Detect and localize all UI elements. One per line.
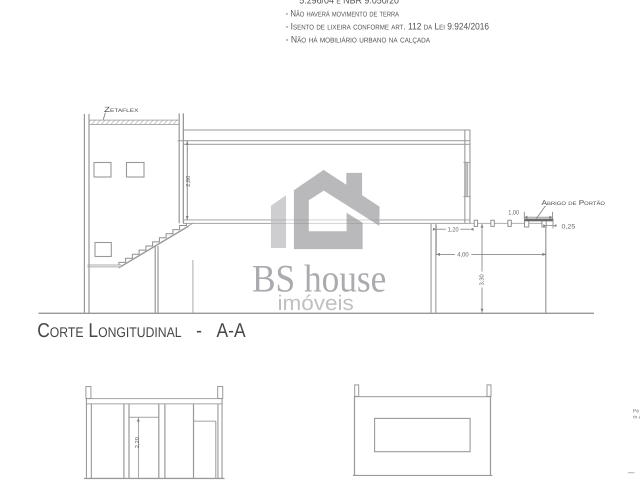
svg-text:Zetaflex: Zetaflex	[104, 105, 139, 114]
svg-text:3,30: 3,30	[479, 274, 486, 285]
svg-text:1,00: 1,00	[508, 209, 519, 216]
svg-text:1,20: 1,20	[448, 226, 459, 233]
svg-text:Abrigo de Portão: Abrigo de Portão	[542, 200, 606, 207]
svg-text:2,80: 2,80	[185, 176, 192, 187]
svg-text:4,00: 4,00	[457, 252, 469, 259]
svg-text:- Isento de lixeira conforme a: - Isento de lixeira conforme art. 112 da…	[286, 22, 489, 33]
svg-text:0,25: 0,25	[562, 224, 576, 231]
svg-text:2,20: 2,20	[134, 437, 141, 448]
svg-text:m alt: m alt	[633, 415, 640, 421]
svg-text:5.296/04 e NBR 9.050/20: 5.296/04 e NBR 9.050/20	[299, 0, 399, 7]
svg-text:- Não há mobiliário urbano na: - Não há mobiliário urbano na calçada	[286, 35, 431, 46]
svg-text:Corte Longitudinal - A-A: Corte Longitudinal - A-A	[37, 320, 246, 342]
svg-text:- Não haverá movimento de terr: - Não haverá movimento de terra	[286, 8, 400, 19]
svg-text:imóveis: imóveis	[278, 292, 354, 315]
